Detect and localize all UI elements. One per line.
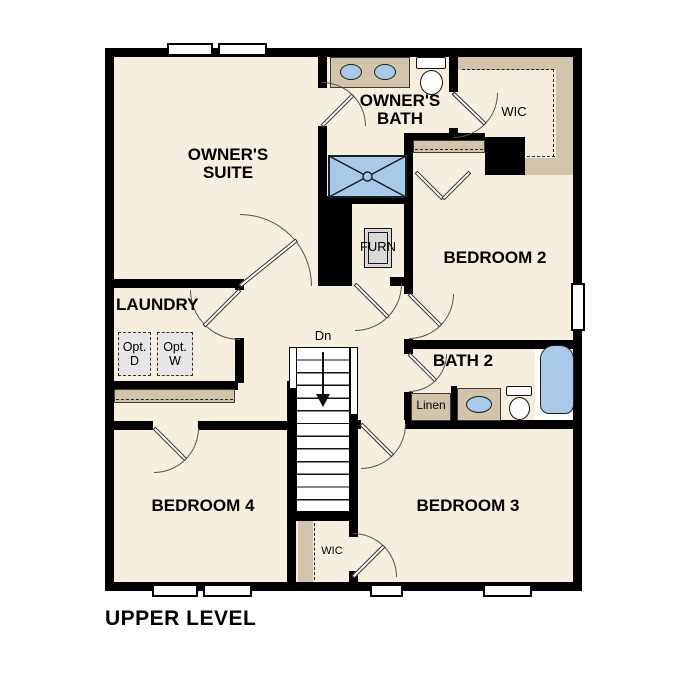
laundry-label: LAUNDRY [116,296,210,314]
exterior-wall-left [105,48,114,591]
stairs-down-label: Dn [296,329,350,343]
wall-closet-top [404,133,485,140]
bedroom2-closet-dash [415,149,483,150]
wall-block-center [318,196,352,286]
owners-suite-label: OWNER'S SUITE [148,146,308,183]
window-bottom-3 [370,584,403,597]
bathtub-icon [540,345,574,414]
plan-title: UPPER LEVEL [105,607,365,631]
window-top-1 [167,43,213,56]
bedroom3-label: BEDROOM 3 [393,497,543,515]
owners-bath-toilet-tank-icon [416,57,446,69]
window-bottom-2 [203,584,252,597]
furnace-label: FURN [355,240,401,254]
floor-plan: Opt. D Opt. W OWNER'S SUITE OWNER'S BATH… [0,0,687,687]
wall-bath2-bedroom3 [405,420,582,429]
stairs-arrow-shaft [322,352,324,396]
bedroom4-closet-dash [116,399,233,400]
wall-wicb-top [287,512,358,521]
optional-dryer-box: Opt. D [118,332,151,376]
owners-bath-label: OWNER'S BATH [340,92,460,129]
bath2-sink-icon [466,396,492,413]
bath2-label: BATH 2 [418,352,508,370]
owners-bath-sink-right-icon [374,64,396,80]
optional-washer-box: Opt. W [157,332,193,376]
wic-top-label: WIC [487,105,541,119]
stairs-arrow-head-icon [316,394,330,407]
window-top-2 [218,43,267,56]
bedroom4-closet-shelf [114,389,235,403]
bath2-toilet-tank-icon [506,386,532,396]
shower-icon [328,155,407,198]
wic-top-shelf-bottom [525,158,573,175]
wall-suite-laundry [105,279,238,288]
wic-bottom-shelf-dash [314,523,315,580]
bedroom2-closet-shelf [413,140,485,153]
wall-laundry-right [235,338,244,383]
linen-label: Linen [411,399,451,412]
window-right-bedroom2 [571,283,585,331]
wic-bottom-label: WIC [316,546,348,558]
wic-bottom-shelf [298,521,313,582]
bedroom4-label: BEDROOM 4 [128,497,278,515]
wall-wic-corner-block [485,137,525,175]
wall-closet-front-left [105,421,153,430]
optional-dryer-label: Opt. D [123,340,147,369]
optional-washer-label: Opt. W [163,340,187,369]
wic-top-shelf-dash-bottom [527,156,555,157]
owners-bath-sink-left-icon [340,64,362,80]
window-bottom-4 [483,584,532,597]
wall-closet-front-right [198,421,289,430]
wic-top-shelf-dash-top [462,69,554,70]
wic-top-shelf-dash-right [553,69,554,157]
stairs-rail-right [350,347,358,415]
wall-suite-bath-lower [318,126,327,204]
bedroom2-label: BEDROOM 2 [420,249,570,267]
bath2-toilet-bowl-icon [509,397,530,420]
wall-bath-wic [449,48,458,92]
window-bottom-1 [152,584,198,597]
wall-stairs-left [287,385,296,582]
